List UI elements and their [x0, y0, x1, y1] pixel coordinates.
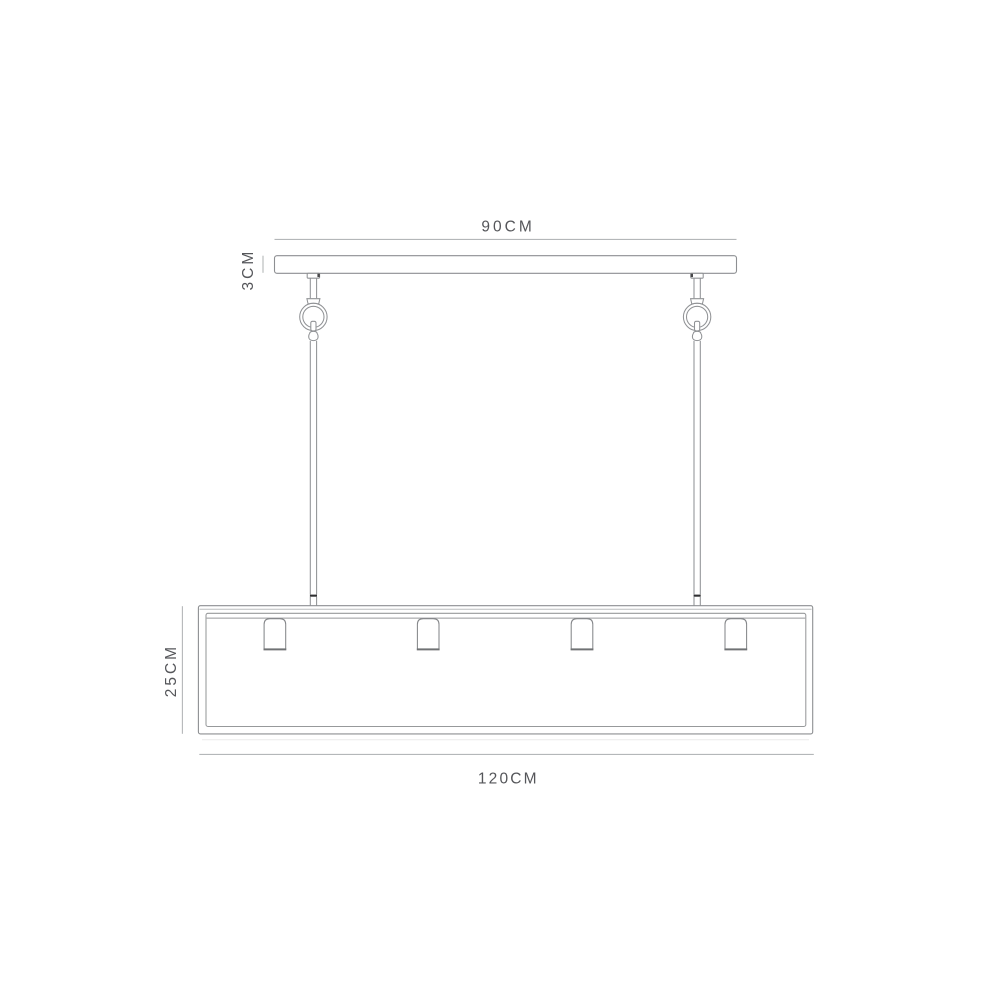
- svg-text:90CM: 90CM: [481, 219, 534, 236]
- svg-text:120CM: 120CM: [478, 771, 539, 788]
- svg-text:25CM: 25CM: [163, 644, 180, 697]
- svg-text:3CM: 3CM: [240, 249, 257, 291]
